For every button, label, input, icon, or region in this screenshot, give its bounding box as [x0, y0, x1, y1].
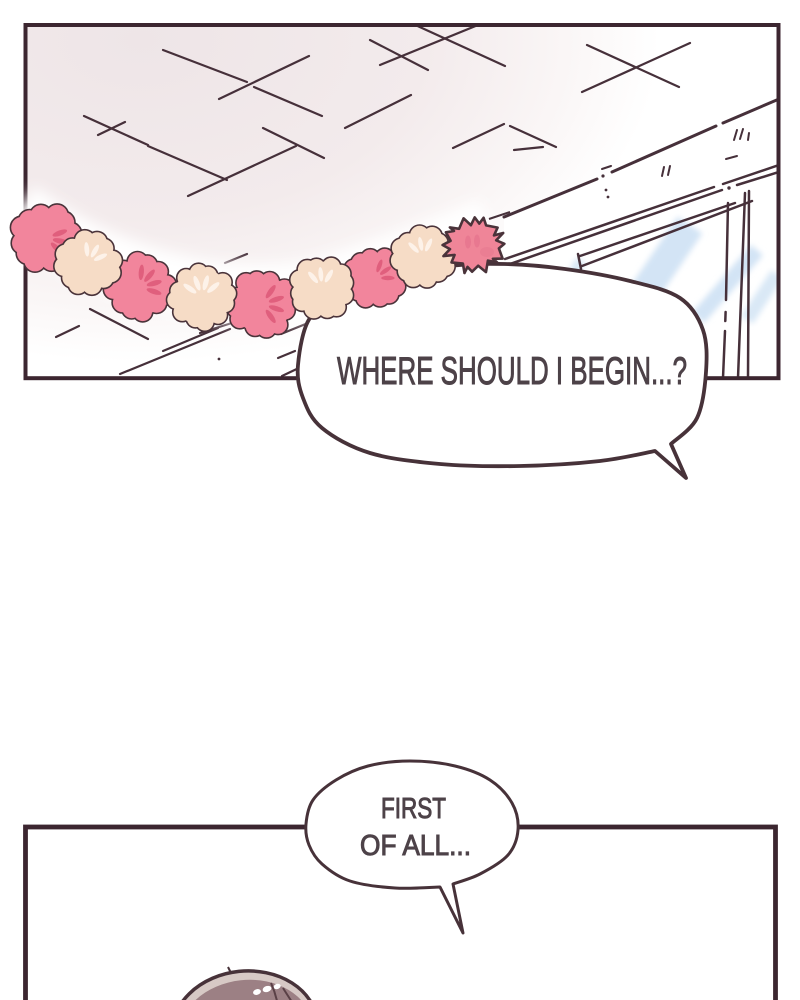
svg-text:WHERE SHOULD I BEGIN...?: WHERE SHOULD I BEGIN...?	[337, 350, 687, 393]
svg-text:FIRST: FIRST	[381, 793, 446, 825]
svg-text:OF ALL...: OF ALL...	[360, 830, 471, 862]
